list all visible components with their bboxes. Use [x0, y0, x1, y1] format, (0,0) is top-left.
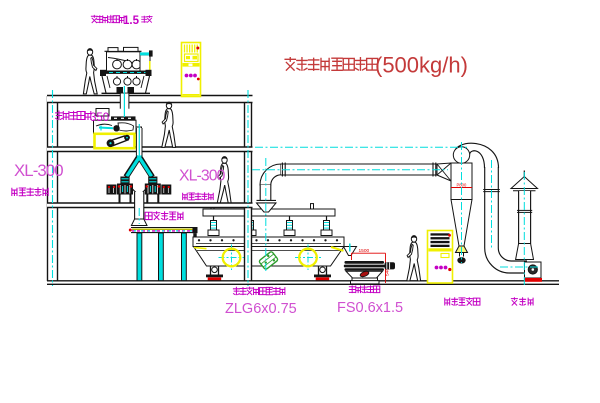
svg-text:ZLG6x0.75: ZLG6x0.75 [225, 301, 297, 317]
svg-text:(500kg/h): (500kg/h) [375, 53, 468, 78]
svg-text:350: 350 [90, 112, 109, 124]
svg-text:XL-300: XL-300 [14, 161, 63, 180]
svg-text:XL-300: XL-300 [179, 168, 226, 185]
svg-text:1.5: 1.5 [123, 15, 140, 27]
svg-text:FS0.6x1.5: FS0.6x1.5 [337, 300, 403, 316]
svg-text:1500: 1500 [359, 248, 370, 254]
